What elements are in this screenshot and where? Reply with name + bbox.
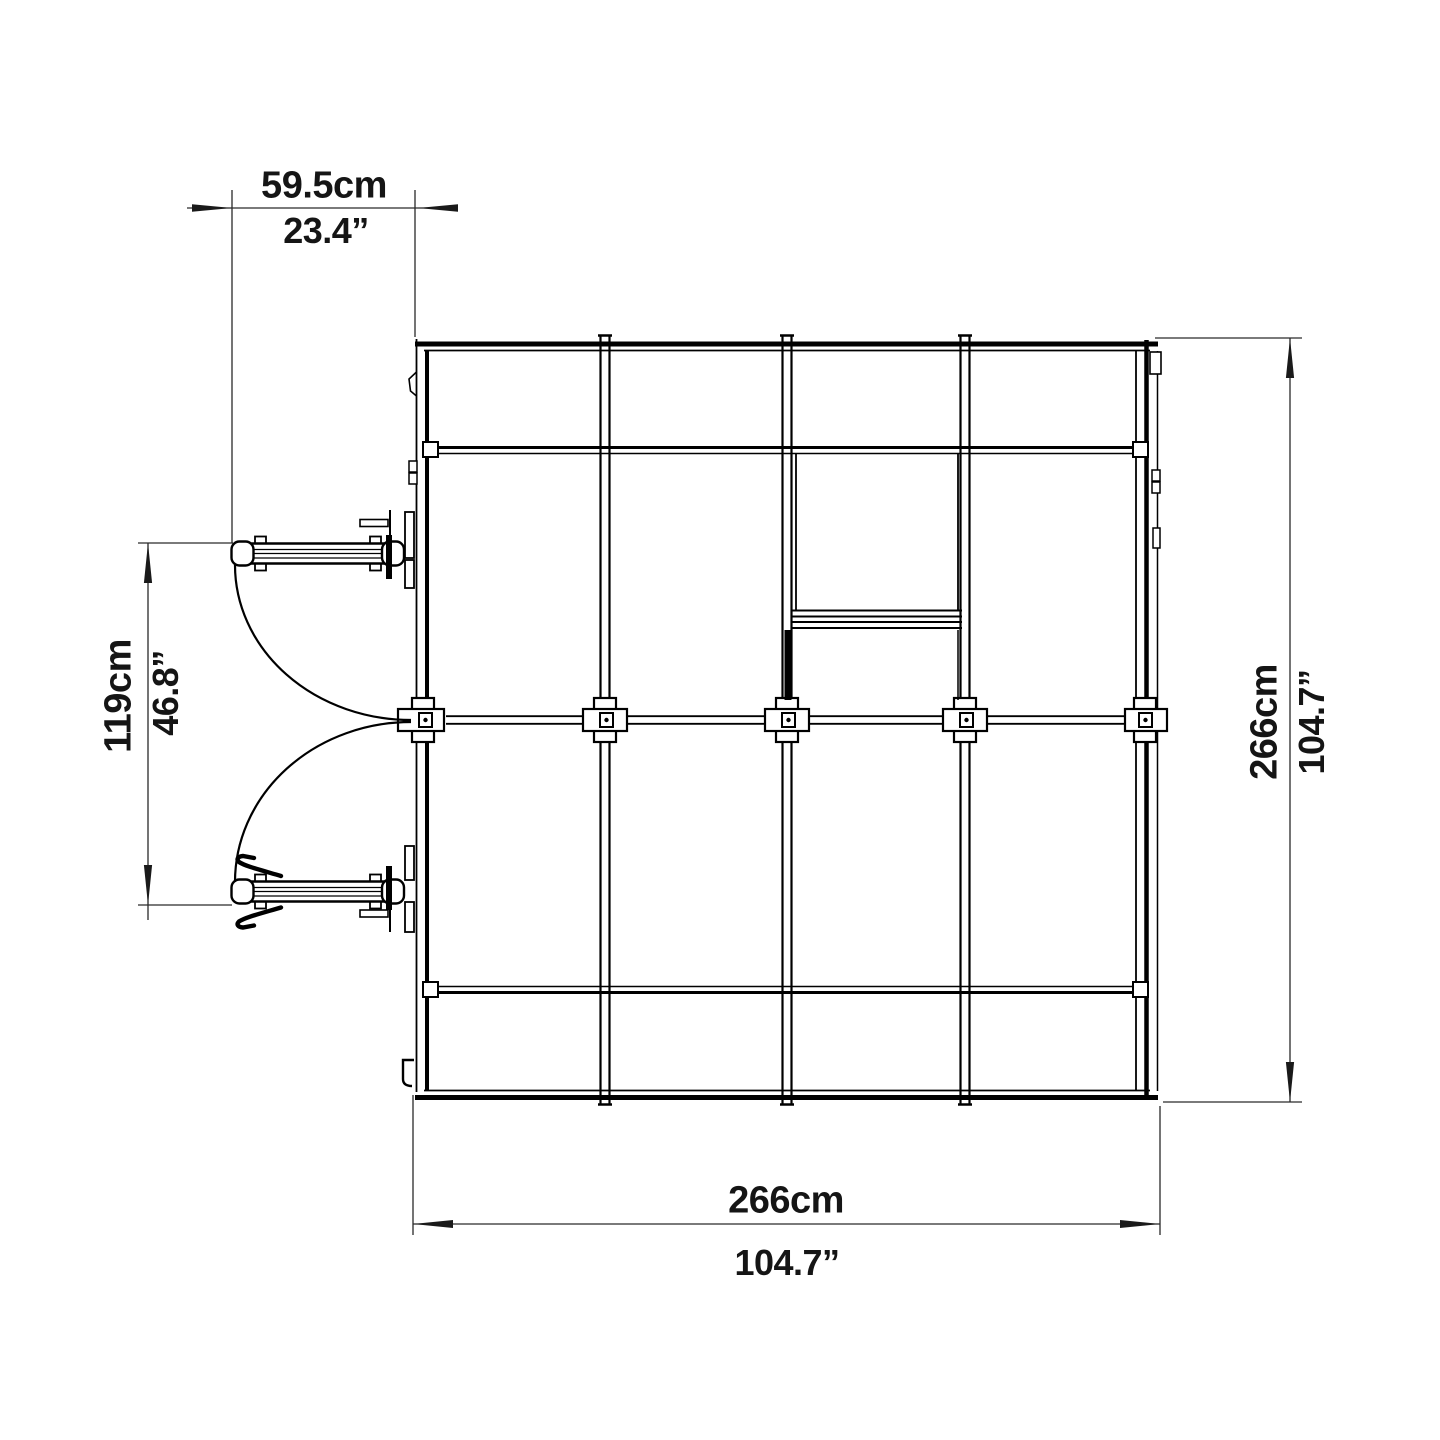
dimension-width-imperial: 104.7” — [734, 1242, 839, 1284]
door-lower — [232, 875, 405, 909]
ridge-connector-1 — [583, 698, 627, 742]
ridge-connector-right-wall — [1125, 698, 1167, 742]
ridge-connector-2 — [765, 698, 809, 742]
roof-vent — [785, 453, 963, 700]
dimension-depth-imperial: 104.7” — [1291, 669, 1333, 774]
dimension-door-width-metric: 59.5cm — [261, 165, 387, 208]
dimension-door-opening-metric: 119cm — [98, 639, 141, 753]
door-swing-arcs — [235, 565, 411, 882]
dimension-door-width-imperial: 23.4” — [283, 210, 369, 252]
dimension-depth-metric: 266cm — [1244, 664, 1287, 780]
dimension-width-metric: 266cm — [728, 1180, 844, 1223]
ridge-connector-3 — [943, 698, 987, 742]
technical-drawing-canvas: 59.5cm 23.4” 119cm 46.8” 266cm 104.7” 26… — [0, 0, 1440, 1440]
greenhouse-plan-drawing — [0, 0, 1440, 1440]
dimension-door-opening-imperial: 46.8” — [145, 650, 187, 736]
door-upper — [232, 537, 405, 571]
